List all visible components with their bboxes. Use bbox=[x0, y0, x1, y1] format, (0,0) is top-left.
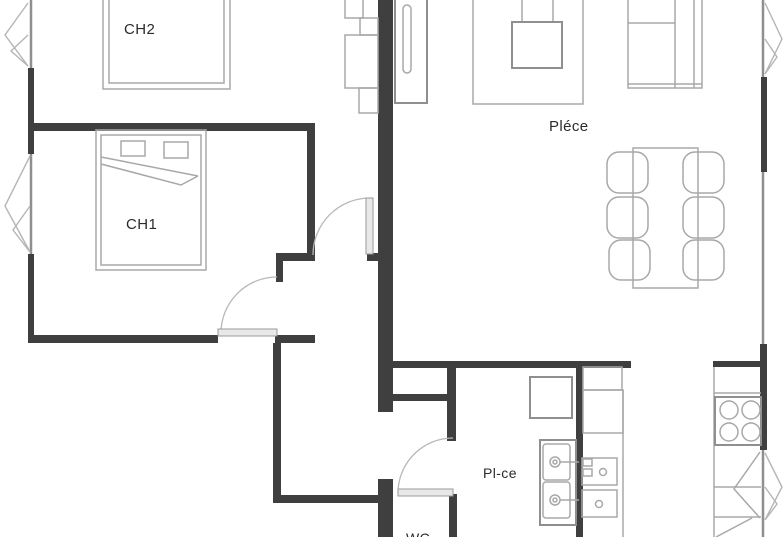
door-wc bbox=[398, 438, 453, 496]
bed-inner bbox=[101, 135, 201, 265]
sofa bbox=[628, 0, 702, 88]
wall-ch1-bottom-right bbox=[275, 335, 315, 343]
wall-central-lower bbox=[378, 479, 393, 537]
dining-chair bbox=[607, 197, 648, 238]
room-label-ch1: CH1 bbox=[126, 216, 157, 233]
wall-cabinet bbox=[530, 377, 572, 418]
wall-central bbox=[378, 0, 393, 412]
washer-knob-icon bbox=[596, 501, 603, 508]
right-counter bbox=[714, 367, 761, 537]
appliance bbox=[583, 367, 622, 390]
desk-part bbox=[359, 88, 378, 113]
desk-ch2 bbox=[345, 0, 378, 113]
furniture bbox=[96, 0, 761, 537]
door-leaf bbox=[218, 329, 277, 336]
window-swing-icon bbox=[765, 453, 782, 520]
dining-set bbox=[607, 148, 724, 288]
wall-ch1-right bbox=[307, 123, 315, 259]
room-label-living: Pléce bbox=[549, 118, 589, 135]
dining-chair bbox=[607, 152, 648, 193]
door-ch2 bbox=[313, 198, 373, 255]
chair-seat bbox=[512, 22, 562, 68]
wall-hall-left bbox=[273, 343, 281, 497]
floor-plan-canvas: CH2 CH1 Pléce Pl-ce WC bbox=[0, 0, 784, 537]
cabinet-living bbox=[395, 0, 427, 103]
wall-left-lower bbox=[28, 254, 34, 343]
wall-ch1-bottom-left bbox=[28, 335, 218, 343]
washer-knob-icon bbox=[600, 469, 607, 476]
window-swing-icon bbox=[765, 3, 782, 74]
bed-ch1 bbox=[96, 130, 206, 270]
room-labels: CH2 CH1 Pléce Pl-ce WC bbox=[124, 21, 589, 537]
room-label-wc: WC bbox=[406, 530, 430, 537]
floor-plan: CH2 CH1 Pléce Pl-ce WC bbox=[0, 0, 784, 537]
door-arc bbox=[398, 438, 453, 493]
wall-ch1-door-stub bbox=[276, 253, 283, 282]
wall-counter-top bbox=[713, 361, 762, 367]
sofa-outline bbox=[628, 0, 702, 88]
wall-shaft-bottom bbox=[393, 394, 454, 401]
bed-inner bbox=[109, 0, 224, 83]
dining-table bbox=[633, 148, 698, 288]
door-leaf bbox=[366, 198, 373, 254]
desk-living bbox=[473, 0, 583, 104]
blanket-fold bbox=[101, 157, 198, 185]
bed-outline bbox=[96, 130, 206, 270]
wall-kitchen-left bbox=[447, 361, 456, 441]
dining-chair bbox=[683, 197, 724, 238]
bed-outline bbox=[103, 0, 230, 89]
tap-connector bbox=[583, 459, 592, 466]
bed-ch2 bbox=[103, 0, 230, 89]
desk-part bbox=[345, 35, 378, 88]
window-swing-icon bbox=[5, 156, 30, 252]
pillow bbox=[164, 142, 188, 158]
door-ch1 bbox=[218, 277, 277, 336]
counter-zigzag bbox=[716, 452, 760, 537]
chair-back bbox=[522, 0, 553, 22]
dining-chair bbox=[609, 240, 650, 280]
dining-chair bbox=[683, 240, 724, 280]
door-leaf bbox=[398, 489, 453, 496]
appliance bbox=[583, 390, 623, 433]
desk-part bbox=[360, 18, 378, 35]
desk-part bbox=[345, 0, 363, 18]
windows bbox=[5, 0, 782, 537]
door-arc bbox=[221, 277, 277, 333]
room-label-kitchen: Pl-ce bbox=[483, 465, 517, 481]
washer bbox=[582, 490, 617, 517]
window-swing-icon bbox=[5, 3, 28, 66]
dining-chair bbox=[683, 152, 724, 193]
tap-connector bbox=[583, 469, 592, 476]
sofa-lines bbox=[628, 0, 702, 88]
door-arc bbox=[313, 198, 370, 255]
wall-right-upper bbox=[761, 77, 767, 172]
room-label-ch2: CH2 bbox=[124, 21, 155, 38]
appliance-column bbox=[582, 367, 623, 537]
doors bbox=[218, 198, 453, 496]
wall-left-upper bbox=[28, 68, 34, 154]
wall-wc-right bbox=[449, 494, 457, 537]
wall-hall-bottom bbox=[273, 495, 380, 503]
pillow bbox=[121, 141, 145, 156]
